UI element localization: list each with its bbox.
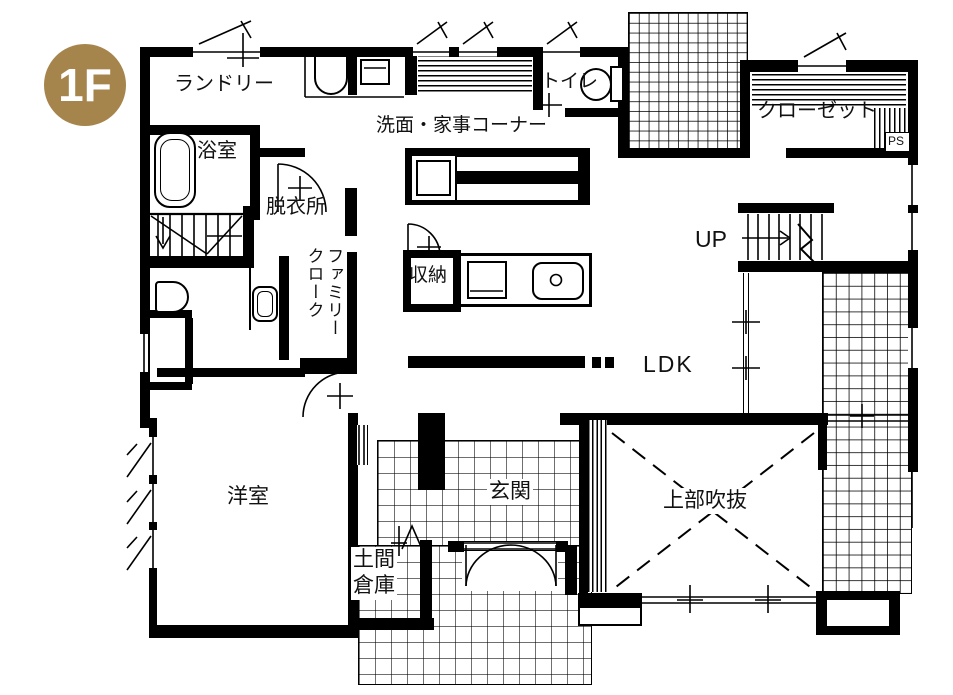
room-label-storage: 収納 xyxy=(409,264,447,288)
laundry-appliance-icon xyxy=(360,59,390,85)
room-label-closet: クローゼット xyxy=(757,99,877,124)
door-leaf-icon xyxy=(155,281,189,313)
wall xyxy=(347,252,357,360)
stairs-down xyxy=(150,214,243,256)
toilet-tank-icon xyxy=(610,66,624,102)
room-label-utility: 洗面・家事コーナー xyxy=(376,114,547,138)
bathtub-inner xyxy=(160,139,190,201)
wall xyxy=(243,206,254,258)
wall xyxy=(565,545,577,595)
wall xyxy=(140,418,157,428)
kitchen-sink-icon xyxy=(532,262,584,300)
stairs-up xyxy=(742,214,822,264)
window xyxy=(908,165,918,205)
room-label-laundry: ランドリー xyxy=(174,72,274,97)
window xyxy=(149,530,157,568)
wall xyxy=(345,188,357,236)
pocket-door xyxy=(356,425,368,465)
wall xyxy=(908,368,918,472)
wall xyxy=(908,205,918,213)
window xyxy=(413,48,449,56)
wall xyxy=(580,47,620,57)
room-label-dressing: 脱衣所 xyxy=(266,195,326,220)
wall xyxy=(818,425,827,470)
door-swing-area xyxy=(462,551,558,591)
interior-window-line xyxy=(743,273,749,418)
room-label-entrance: 玄関 xyxy=(487,479,533,505)
wall xyxy=(618,148,748,158)
tile-floor-terrace xyxy=(628,12,748,154)
tile-floor-deck xyxy=(822,272,912,594)
wall xyxy=(449,47,459,57)
wall xyxy=(565,108,620,117)
cooktop-icon xyxy=(467,261,507,299)
bay-inner xyxy=(827,600,889,626)
window xyxy=(140,334,148,372)
window xyxy=(798,61,846,71)
wall xyxy=(578,593,642,606)
room-label-doma-storage: 土間 倉庫 xyxy=(351,547,397,600)
window xyxy=(149,437,157,475)
wall xyxy=(185,318,193,384)
tile-floor-entrance xyxy=(377,440,583,547)
wall xyxy=(149,625,358,638)
stairs-up-label: UP xyxy=(695,225,727,254)
counter-shelf xyxy=(457,184,578,200)
slit-screen xyxy=(588,420,607,592)
washbasin-icon xyxy=(416,160,451,196)
wall xyxy=(348,618,434,630)
wall xyxy=(420,540,432,628)
wall xyxy=(279,256,289,360)
wall xyxy=(618,47,628,158)
wall xyxy=(738,203,834,213)
porch-step xyxy=(578,606,642,626)
window xyxy=(908,328,918,368)
wall xyxy=(448,541,464,552)
wall xyxy=(140,256,254,268)
wall xyxy=(418,413,445,490)
window xyxy=(908,213,918,250)
wall xyxy=(157,368,305,377)
room-label-western-room: 洋室 xyxy=(227,484,269,510)
partition-line xyxy=(249,258,251,330)
wall xyxy=(592,357,601,368)
window xyxy=(193,48,260,56)
room-label-ldk: LDK xyxy=(643,350,694,379)
room-label-void: 上部吹抜 xyxy=(661,488,749,514)
wall xyxy=(579,413,588,593)
window xyxy=(543,48,580,56)
vanity-basin-inner xyxy=(257,291,273,317)
wall xyxy=(740,60,798,72)
window xyxy=(459,48,497,56)
washing-machine-icon xyxy=(314,55,348,95)
entrance-sill xyxy=(464,541,556,551)
wall xyxy=(740,60,750,158)
room-label-bath: 浴室 xyxy=(197,139,237,164)
linen-shelf-hatch xyxy=(418,55,532,93)
room-label-family-cloak: ファミリー クローク xyxy=(304,247,343,387)
wall xyxy=(408,356,585,368)
wall xyxy=(405,50,417,95)
room-label-ps: PS xyxy=(888,134,904,149)
floor-plan-1f: 1F xyxy=(0,0,953,695)
floor-badge: 1F xyxy=(44,44,126,126)
room-label-toilet: トイレ xyxy=(541,70,598,94)
wall xyxy=(348,50,357,95)
wall xyxy=(260,148,305,157)
wall xyxy=(605,357,614,368)
wall xyxy=(738,261,918,272)
counter-shelf xyxy=(457,157,578,171)
window xyxy=(149,484,157,522)
